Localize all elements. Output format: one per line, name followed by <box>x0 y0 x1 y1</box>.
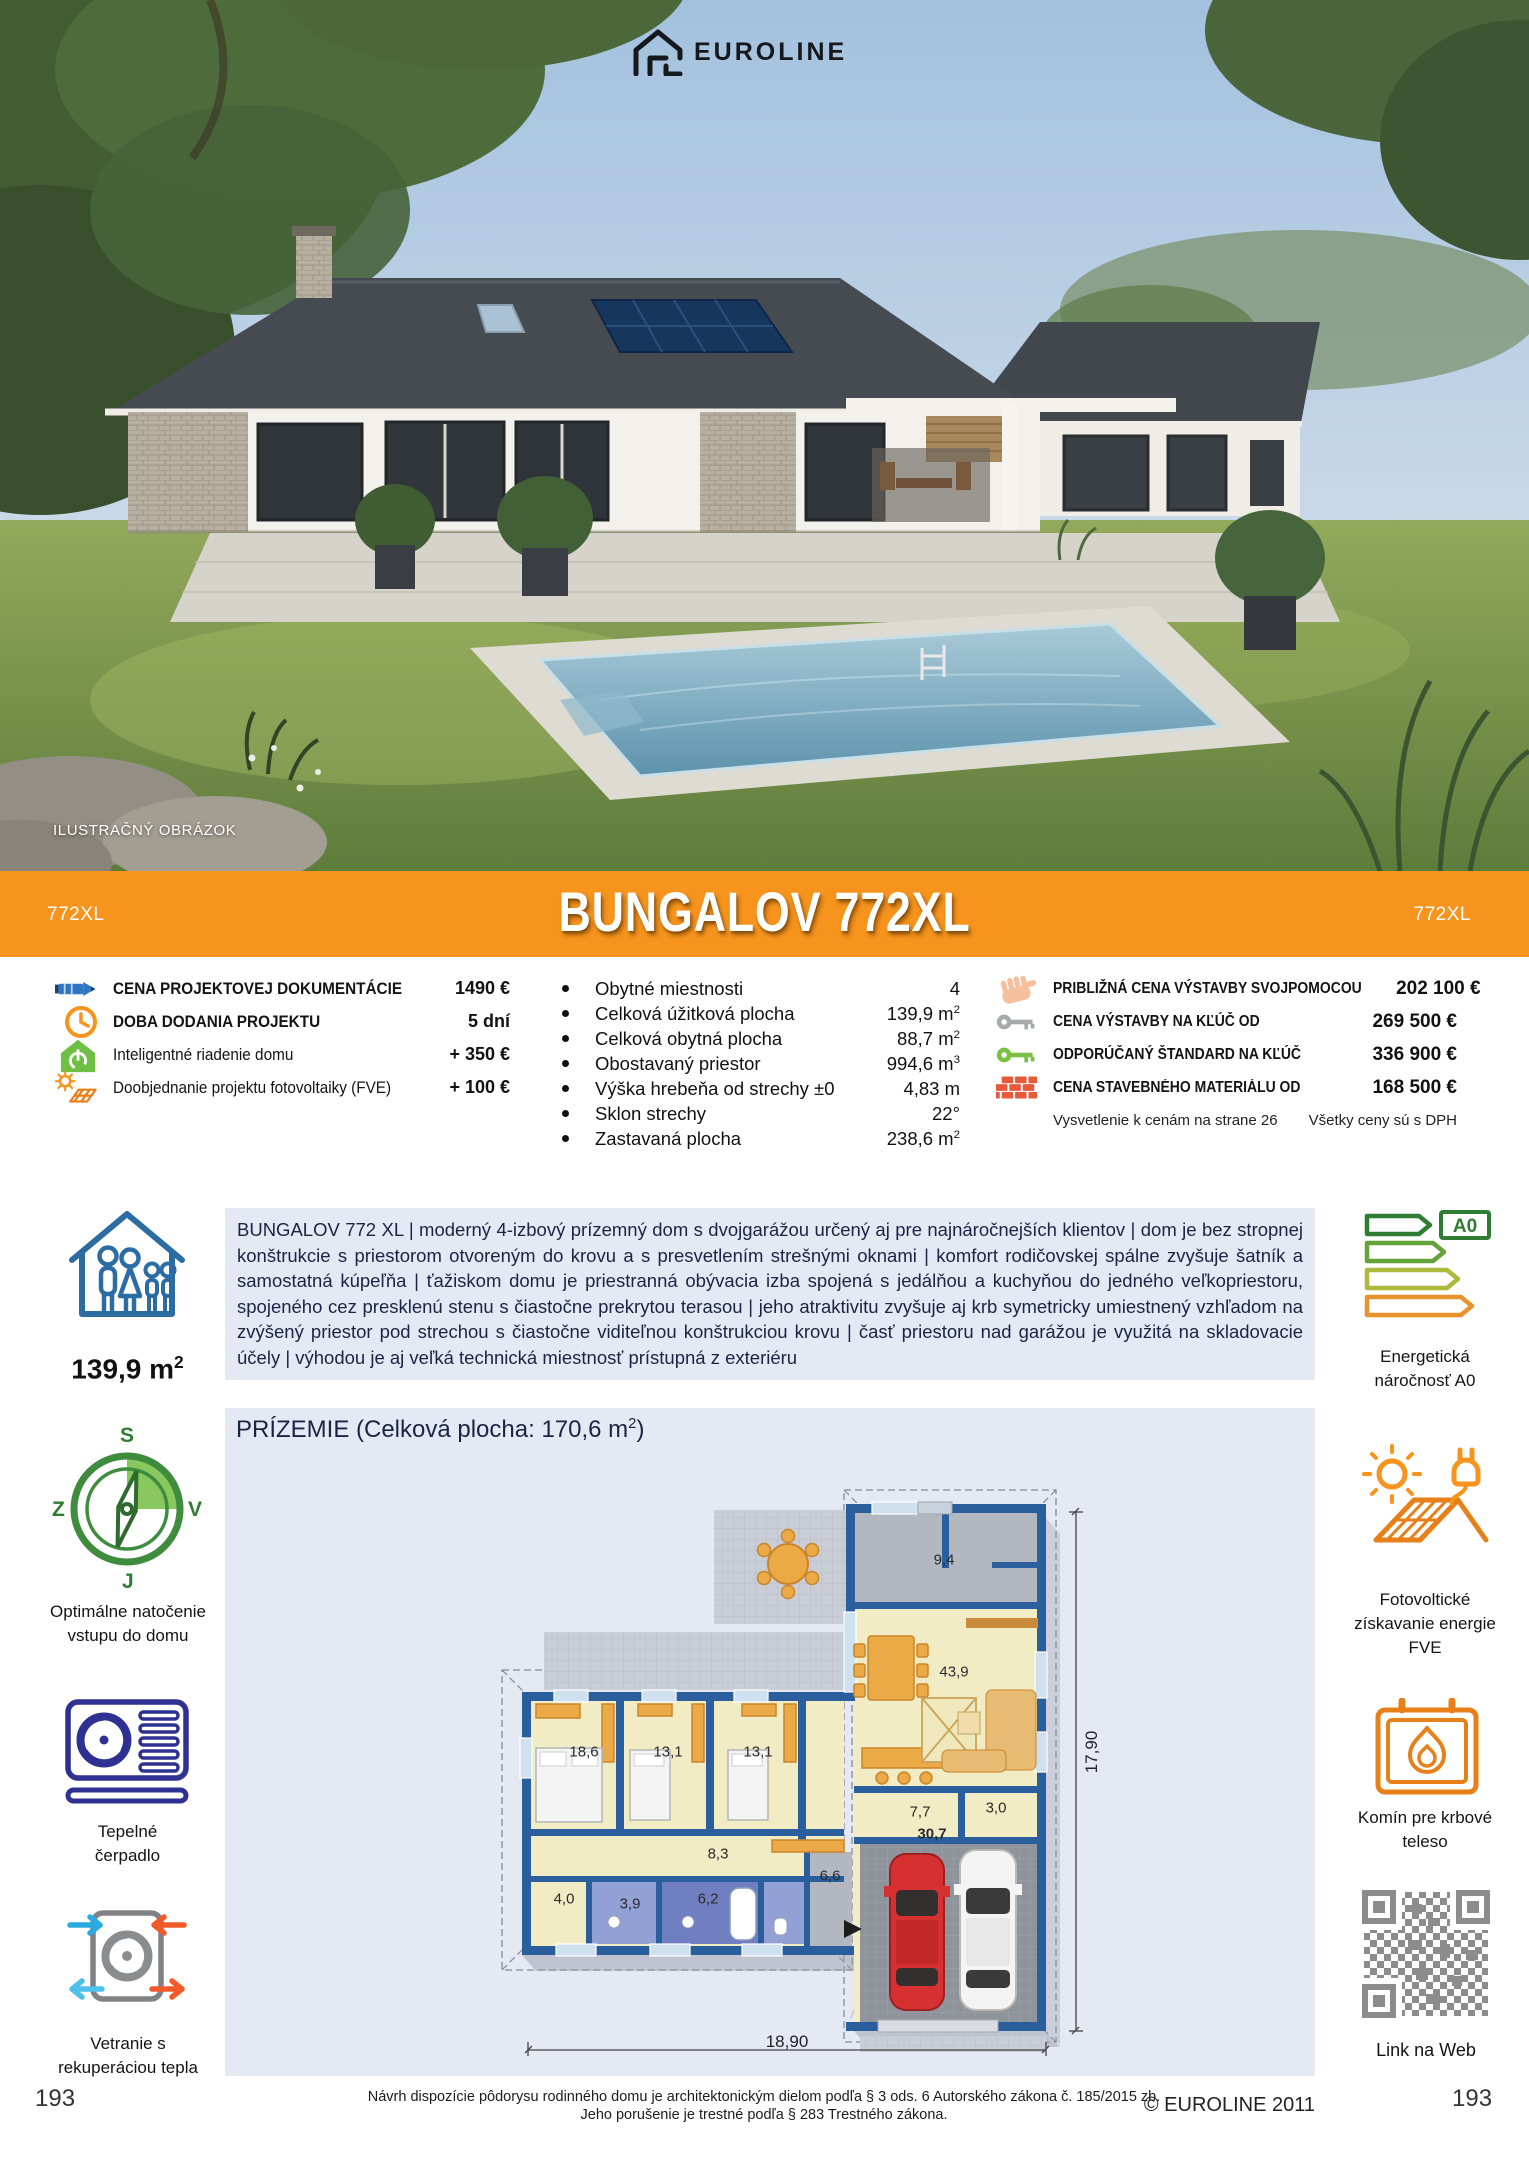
pricing-row: CENA PROJEKTOVEJ DOKUMENTÁCIE 1490 € <box>55 972 510 1005</box>
pricing-row: CENA STAVEBNÉHO MATERIÁLU OD 168 500 € <box>995 1071 1457 1104</box>
qr-code-icon <box>1356 1884 1496 2024</box>
spec-row: Obytné miestnosti4 <box>552 976 960 1001</box>
description-block: BUNGALOV 772 XL | moderný 4-izbový príze… <box>225 1208 1315 1380</box>
room-area-label: 3,9 <box>620 1896 641 1913</box>
floorplan-drawing: 9,4 43,9 18,6 13,1 13,1 8,3 7,7 3,0 30,7… <box>492 1452 1104 2064</box>
spec-value: 88,7 m2 <box>897 1028 960 1050</box>
pricing-row: PRIBLIŽNÁ CENA VÝSTAVBY SVOJPOMOCOU 202 … <box>995 972 1457 1005</box>
room-area-label: 30,7 <box>917 1826 946 1843</box>
qr-label: Link na Web <box>1356 2038 1496 2062</box>
room-area-label: 8,3 <box>708 1846 729 1863</box>
heat-pump-icon <box>64 1698 190 1806</box>
pencil-icon <box>55 978 113 1000</box>
pricing-row: CENA VÝSTAVBY NA KĽÚČ OD 269 500 € <box>995 1005 1457 1038</box>
room-area-label: 6,6 <box>820 1868 841 1885</box>
room-area-label: 13,1 <box>743 1744 772 1761</box>
bullet-icon <box>562 1035 569 1042</box>
photo-caption: ILUSTRAČNÝ OBRÁZOK <box>53 822 236 839</box>
room-area-label: 4,0 <box>554 1891 575 1908</box>
compass-icon <box>68 1450 186 1568</box>
model-code-right: 772XL <box>1414 904 1471 926</box>
ventilation-block <box>65 1905 189 2009</box>
price-note-left: Vysvetlenie k cenám na strane 26 <box>1053 1112 1278 1129</box>
spec-label: Výška hrebeňa od strechy ±0 <box>595 1078 903 1100</box>
qr-code <box>1356 1884 1496 2024</box>
bullet-icon <box>562 1010 569 1017</box>
compass-south: J <box>122 1570 134 1594</box>
house-family-icon <box>58 1200 196 1326</box>
bullet-icon <box>562 1085 569 1092</box>
spec-label: Celková úžitková plocha <box>595 1003 887 1025</box>
key-green-icon <box>995 1044 1053 1066</box>
copyright: © EUROLINE 2011 <box>1144 2094 1315 2117</box>
spec-row: Obostavaný priestor994,6 m3 <box>552 1051 960 1076</box>
spec-label: Celková obytná plocha <box>595 1028 897 1050</box>
clock-icon <box>55 1004 113 1040</box>
pricing-value: + 350 € <box>449 1044 510 1065</box>
dimension-height: 17,90 <box>1082 1731 1102 1774</box>
pricing-row: ODPORÚČANÝ ŠTANDARD NA KĽÚČ 336 900 € <box>995 1038 1457 1071</box>
room-area-label: 7,7 <box>910 1804 931 1821</box>
energy-badge: A0 <box>1453 1216 1477 1237</box>
chimney-label: Komín pre krbovételeso <box>1340 1806 1510 1854</box>
pricing-value: 5 dní <box>468 1011 510 1032</box>
page-number-left: 193 <box>35 2085 75 2113</box>
legal-note: Návrh dispozície pôdorysu rodinného domu… <box>264 2088 1264 2124</box>
spec-value: 994,6 m3 <box>887 1053 960 1075</box>
floorplan-title: PRÍZEMIE (Celková plocha: 170,6 m2) <box>236 1416 644 1444</box>
brand-logo: EUROLINE <box>632 28 847 76</box>
compass-east: V <box>188 1498 202 1522</box>
bricks-icon <box>995 1075 1053 1101</box>
pricing-label: CENA STAVEBNÉHO MATERIÁLU OD <box>1053 1079 1300 1097</box>
spec-label: Obytné miestnosti <box>595 978 950 1000</box>
pricing-value: 202 100 € <box>1396 978 1481 1000</box>
pricing-label: Inteligentné riadenie domu <box>113 1045 293 1065</box>
spec-value: 238,6 m2 <box>887 1128 960 1150</box>
bullet-icon <box>562 1060 569 1067</box>
room-area-label: 18,6 <box>569 1744 598 1761</box>
photovoltaic-block <box>1360 1442 1496 1558</box>
compass-north: S <box>120 1424 134 1448</box>
heat-pump-label: Tepelnéčerpadlo <box>40 1820 215 1868</box>
spec-label: Sklon strechy <box>595 1103 932 1125</box>
pricing-value: 168 500 € <box>1372 1077 1457 1099</box>
hand-icon <box>995 972 1053 1006</box>
specs-list: Obytné miestnosti4 Celková úžitková ploc… <box>552 976 960 1151</box>
usable-area-value: 139,9 m2 <box>40 1352 215 1385</box>
pricing-value: 336 900 € <box>1372 1044 1457 1066</box>
euroline-house-icon <box>632 28 684 76</box>
chimney-icon <box>1370 1698 1484 1798</box>
spec-value: 139,9 m2 <box>887 1003 960 1025</box>
compass-west: Z <box>52 1498 65 1522</box>
spec-row: Celková úžitková plocha139,9 m2 <box>552 1001 960 1026</box>
pricing-value: 269 500 € <box>1372 1011 1457 1033</box>
pricing-label: ODPORÚČANÝ ŠTANDARD NA KĽÚČ <box>1053 1046 1301 1064</box>
pricing-row: Doobjednanie projektu fotovoltaiky (FVE)… <box>55 1071 510 1104</box>
price-note-right: Všetky ceny sú s DPH <box>1309 1112 1457 1129</box>
pricing-label: DOBA DODANIA PROJEKTU <box>113 1012 320 1032</box>
title-banner: 772XL BUNGALOV 772XL 772XL <box>0 871 1529 957</box>
pricing-label: CENA PROJEKTOVEJ DOKUMENTÁCIE <box>113 979 402 999</box>
spec-row: Výška hrebeňa od strechy ±04,83 m <box>552 1076 960 1101</box>
pricing-value: + 100 € <box>449 1077 510 1098</box>
heat-pump-block <box>62 1698 192 1806</box>
spec-value: 22° <box>932 1103 960 1125</box>
bullet-icon <box>562 1135 569 1142</box>
pricing-label: CENA VÝSTAVBY NA KĽÚČ OD <box>1053 1013 1260 1031</box>
room-area-label: 3,0 <box>986 1800 1007 1817</box>
dimension-width: 18,90 <box>766 2032 809 2052</box>
spec-row: Zastavaná plocha238,6 m2 <box>552 1126 960 1151</box>
pricing-row: Inteligentné riadenie domu + 350 € <box>55 1038 510 1071</box>
room-area-label: 13,1 <box>653 1744 682 1761</box>
page-number-right: 193 <box>1452 2085 1492 2113</box>
room-area-label: 9,4 <box>934 1552 955 1569</box>
spec-label: Obostavaný priestor <box>595 1053 887 1075</box>
spec-row: Sklon strechy22° <box>552 1101 960 1126</box>
key-gray-icon <box>995 1011 1053 1033</box>
pricing-value: 1490 € <box>455 978 510 999</box>
ventilation-icon <box>66 1905 188 2009</box>
photovoltaic-icon <box>1362 1442 1494 1558</box>
bullet-icon <box>562 1110 569 1117</box>
pricing-left: CENA PROJEKTOVEJ DOKUMENTÁCIE 1490 € DOB… <box>55 972 510 1104</box>
room-area-label: 43,9 <box>939 1664 968 1681</box>
spec-value: 4,83 m <box>903 1078 960 1100</box>
spec-value: 4 <box>950 978 960 1000</box>
compass-label: Optimálne natočenievstupu do domu <box>28 1600 228 1648</box>
bullet-icon <box>562 985 569 992</box>
room-area-label: 6,2 <box>698 1891 719 1908</box>
house-photo-illustration <box>0 0 1529 871</box>
ventilation-label: Vetranie srekuperáciou tepla <box>22 2032 234 2080</box>
house-family-block <box>52 1200 202 1326</box>
energy-rating-icon: A0 <box>1361 1210 1495 1330</box>
pricing-row: DOBA DODANIA PROJEKTU 5 dní <box>55 1005 510 1038</box>
spec-row: Celková obytná plocha88,7 m2 <box>552 1026 960 1051</box>
spec-label: Zastavaná plocha <box>595 1128 887 1150</box>
pricing-label: Doobjednanie projektu fotovoltaiky (FVE) <box>113 1078 391 1098</box>
pricing-right: PRIBLIŽNÁ CENA VÝSTAVBY SVOJPOMOCOU 202 … <box>995 972 1457 1129</box>
chimney-block <box>1368 1698 1486 1798</box>
energy-rating-block: A0 <box>1358 1210 1498 1330</box>
photo-section: EUROLINE ILUSTRAČNÝ OBRÁZOK <box>0 0 1529 871</box>
pricing-label: PRIBLIŽNÁ CENA VÝSTAVBY SVOJPOMOCOU <box>1053 980 1362 998</box>
brand-name: EUROLINE <box>694 38 847 67</box>
page-title: BUNGALOV 772XL <box>0 879 1529 944</box>
photovoltaic-label: Fotovoltickézískavanie energieFVE <box>1332 1588 1518 1660</box>
compass-block: S Z V J <box>52 1428 202 1596</box>
solar-addon-icon <box>55 1068 113 1108</box>
energy-rating-label: Energetickánáročnosť A0 <box>1340 1345 1510 1393</box>
